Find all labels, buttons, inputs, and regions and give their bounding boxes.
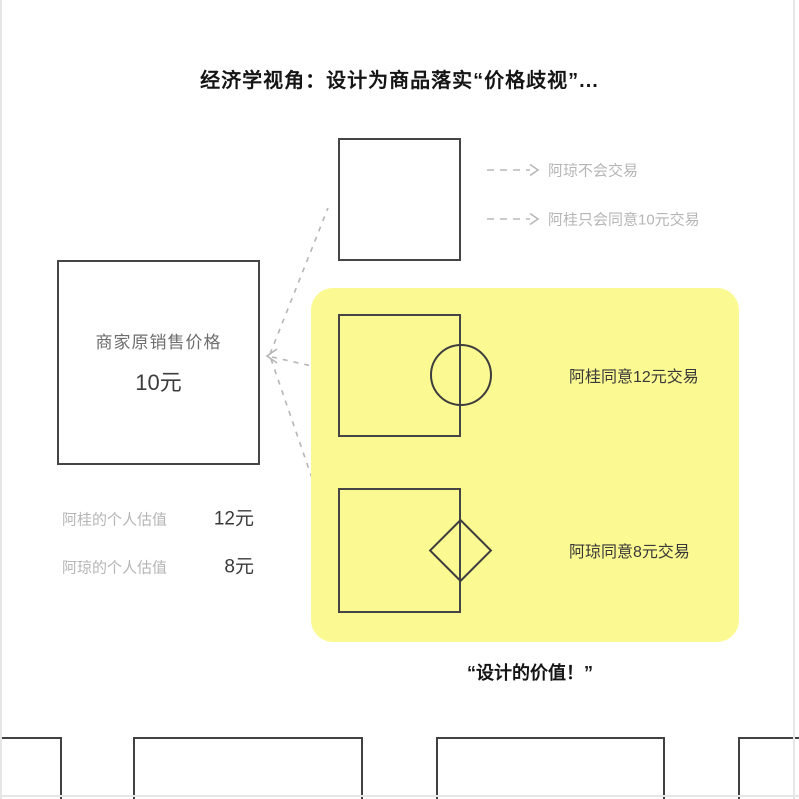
valuation-label: 阿琼的个人估值 bbox=[62, 557, 167, 578]
design-outcome-label: 阿桂同意12元交易 bbox=[569, 363, 699, 387]
merchant-price-label: 商家原销售价格 bbox=[96, 328, 222, 353]
left-arrowhead-icon bbox=[267, 349, 277, 363]
valuation-row: 阿琼的个人估值 8元 bbox=[62, 552, 254, 579]
dashed-arrow-icon bbox=[487, 165, 538, 176]
design-outcome-label: 阿琼同意8元交易 bbox=[569, 538, 690, 562]
no-design-outcome-label: 阿桂只会同意10元交易 bbox=[548, 209, 700, 230]
merchant-price-value: 10元 bbox=[135, 365, 181, 397]
bottom-partial-box bbox=[738, 737, 799, 799]
plain-product-box bbox=[338, 138, 461, 261]
canvas-edge-line bbox=[793, 0, 795, 799]
canvas-edge-line bbox=[0, 795, 799, 797]
circle-design-icon bbox=[430, 344, 492, 406]
valuation-label: 阿桂的个人估值 bbox=[62, 509, 167, 530]
merchant-price-box: 商家原销售价格 10元 bbox=[57, 260, 260, 465]
bottom-partial-box bbox=[436, 737, 665, 799]
page-title: 经济学视角：设计为商品落实“价格歧视”... bbox=[0, 64, 799, 93]
no-design-outcome-label: 阿琼不会交易 bbox=[548, 160, 638, 181]
caption-text: “设计的价值！” bbox=[430, 659, 630, 685]
valuation-value: 12元 bbox=[214, 504, 254, 531]
valuation-row: 阿桂的个人估值 12元 bbox=[62, 504, 254, 531]
diagram-canvas: 经济学视角：设计为商品落实“价格歧视”... bbox=[0, 0, 799, 799]
bottom-partial-box bbox=[133, 737, 363, 799]
bottom-partial-box bbox=[0, 737, 62, 799]
canvas-edge-line bbox=[0, 0, 2, 799]
dashed-arrow-icon bbox=[487, 214, 538, 225]
valuation-value: 8元 bbox=[224, 552, 254, 579]
